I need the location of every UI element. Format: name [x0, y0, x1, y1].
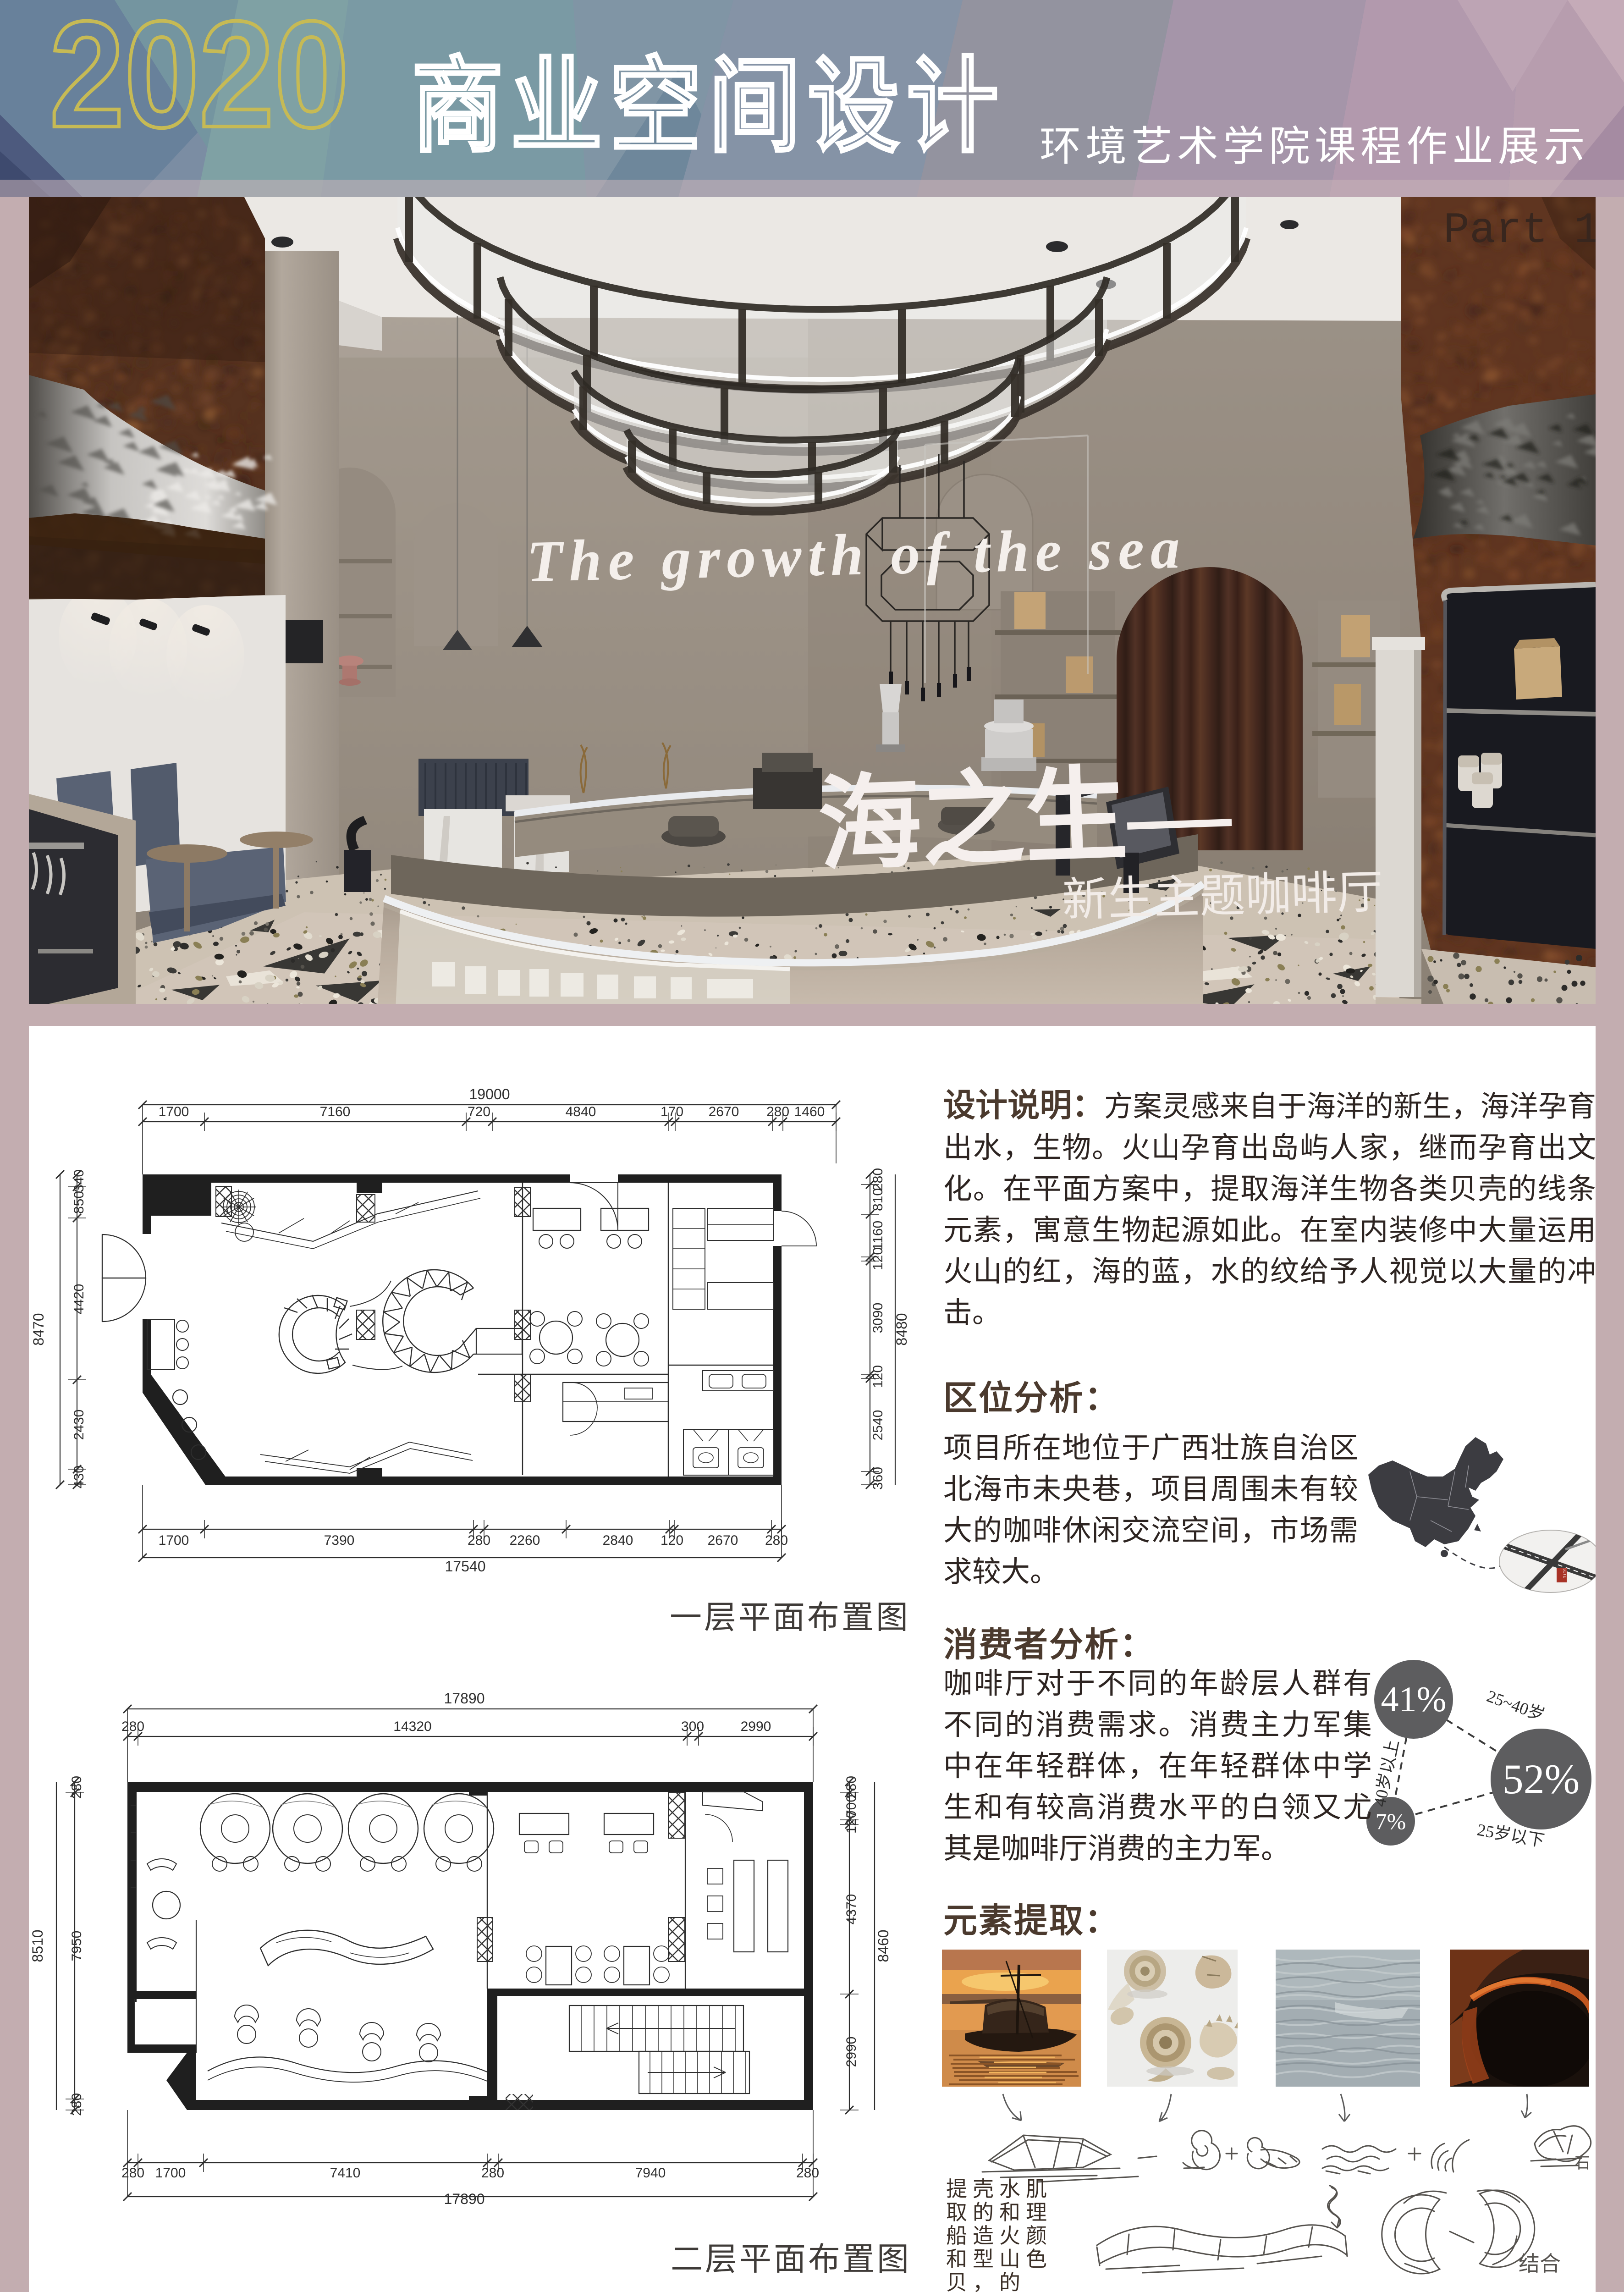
svg-text:2540: 2540 — [870, 1410, 886, 1441]
svg-text:8510: 8510 — [29, 1929, 46, 1962]
svg-text:7950: 7950 — [69, 1931, 84, 1961]
svg-text:19000: 19000 — [469, 1086, 510, 1102]
svg-text:SITE: SITE — [1562, 1568, 1567, 1578]
svg-text:石: 石 — [1574, 2155, 1590, 2172]
svg-text:280: 280 — [481, 2165, 504, 2181]
svg-text:8460: 8460 — [875, 1929, 892, 1962]
svg-text:7160: 7160 — [320, 1104, 351, 1119]
svg-text:41%: 41% — [1381, 1679, 1447, 1719]
svg-text:17890: 17890 — [444, 2191, 485, 2207]
svg-text:25~40岁: 25~40岁 — [1484, 1686, 1547, 1725]
svg-text:120: 120 — [844, 1811, 859, 1834]
svg-text:新生主题咖啡厅: 新生主题咖啡厅 — [1062, 867, 1384, 926]
svg-text:1700: 1700 — [159, 1104, 189, 1119]
svg-text:300: 300 — [681, 1719, 704, 1734]
svg-text:7%: 7% — [1376, 1808, 1406, 1834]
svg-text:7410: 7410 — [330, 2165, 361, 2181]
svg-text:340: 340 — [72, 1169, 87, 1192]
svg-text:280: 280 — [870, 1168, 886, 1191]
svg-text:2990: 2990 — [741, 1719, 771, 1734]
svg-text:120: 120 — [870, 1247, 886, 1270]
svg-text:280: 280 — [766, 1104, 789, 1119]
svg-text:280: 280 — [69, 1776, 84, 1799]
svg-text:280: 280 — [796, 2165, 819, 2181]
svg-text:40岁以上: 40岁以上 — [1370, 1738, 1403, 1808]
svg-text:4370: 4370 — [844, 1894, 859, 1925]
svg-text:7390: 7390 — [324, 1533, 355, 1548]
svg-text:2670: 2670 — [709, 1104, 739, 1119]
svg-text:120: 120 — [870, 1365, 886, 1388]
svg-text:120: 120 — [661, 1533, 683, 1548]
svg-text:结合: 结合 — [1519, 2252, 1561, 2275]
svg-text:2260: 2260 — [510, 1533, 540, 1548]
svg-text:Part 1: Part 1 — [1443, 206, 1596, 255]
svg-text:17540: 17540 — [445, 1558, 486, 1575]
svg-text:850: 850 — [72, 1191, 87, 1214]
svg-text:170: 170 — [661, 1104, 683, 1119]
svg-text:8480: 8480 — [893, 1313, 910, 1345]
svg-text:280: 280 — [121, 1719, 144, 1734]
svg-text:The growth of the sea: The growth of the sea — [526, 515, 1187, 594]
svg-text:2430: 2430 — [72, 1410, 87, 1440]
svg-text:52%: 52% — [1503, 1756, 1580, 1802]
svg-text:1700: 1700 — [159, 1533, 189, 1548]
svg-text:720: 720 — [468, 1104, 490, 1119]
svg-text:2840: 2840 — [603, 1533, 633, 1548]
svg-text:海之生—: 海之生— — [816, 755, 1233, 883]
svg-text:2990: 2990 — [844, 2037, 859, 2067]
svg-text:280: 280 — [121, 2165, 144, 2181]
svg-text:3090: 3090 — [870, 1303, 886, 1333]
svg-text:280: 280 — [468, 1533, 490, 1548]
svg-text:360: 360 — [870, 1467, 886, 1490]
svg-text:17890: 17890 — [444, 1690, 485, 1707]
svg-text:280: 280 — [765, 1533, 788, 1548]
svg-text:8470: 8470 — [30, 1313, 47, 1345]
svg-text:2670: 2670 — [708, 1533, 738, 1548]
svg-text:7940: 7940 — [635, 2165, 666, 2181]
svg-text:810: 810 — [870, 1188, 886, 1211]
svg-text:1700: 1700 — [155, 2165, 186, 2181]
svg-text:4420: 4420 — [72, 1284, 87, 1315]
svg-text:280: 280 — [69, 2093, 84, 2116]
svg-text:1160: 1160 — [870, 1221, 886, 1251]
svg-text:4840: 4840 — [566, 1104, 596, 1119]
svg-text:14320: 14320 — [393, 1719, 431, 1734]
svg-text:1460: 1460 — [794, 1104, 825, 1119]
